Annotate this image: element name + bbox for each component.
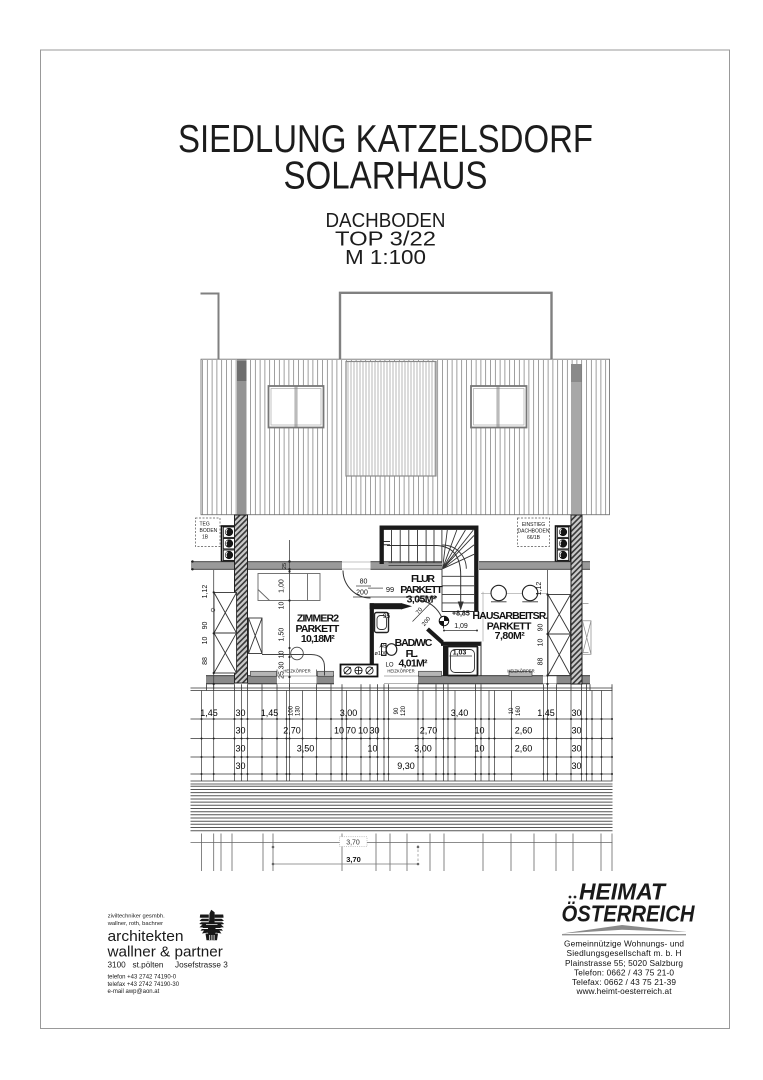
svg-text:3100 st.pölten: 3100 st.pölten	[108, 961, 164, 970]
svg-text:100: 100	[289, 705, 295, 716]
svg-text:160: 160	[516, 705, 522, 716]
svg-text:HEIZKÖRPER: HEIZKÖRPER	[387, 669, 414, 674]
svg-text:10: 10	[279, 602, 286, 610]
svg-text:AB: AB	[380, 644, 388, 650]
svg-text:70: 70	[346, 726, 356, 736]
svg-text:10: 10	[202, 637, 209, 645]
svg-text:architekten: architekten	[108, 928, 184, 945]
svg-text:2,70: 2,70	[420, 726, 438, 736]
svg-text:1,45: 1,45	[537, 708, 555, 718]
svg-text:88: 88	[538, 658, 545, 666]
svg-text:30: 30	[571, 761, 581, 771]
svg-text:9,30: 9,30	[397, 761, 415, 771]
svg-text:1,45: 1,45	[261, 708, 279, 718]
svg-text:ÖSTERREICH: ÖSTERREICH	[562, 901, 695, 927]
svg-text:DACHBODEN: DACHBODEN	[518, 529, 550, 535]
svg-text:30: 30	[235, 761, 245, 771]
svg-text:30: 30	[571, 708, 581, 718]
svg-text:2,70: 2,70	[283, 726, 301, 736]
svg-text:30: 30	[235, 708, 245, 718]
svg-text:telefax +43 2742 74190-30: telefax +43 2742 74190-30	[108, 982, 180, 988]
svg-text:88: 88	[202, 657, 209, 665]
svg-text:66/1B: 66/1B	[527, 535, 541, 541]
svg-text:1,03: 1,03	[453, 650, 467, 657]
svg-text:10,18M²: 10,18M²	[301, 633, 335, 645]
svg-text:90: 90	[538, 624, 545, 632]
svg-text:wallner, roth, bachner: wallner, roth, bachner	[107, 921, 163, 927]
svg-text:3,40: 3,40	[451, 708, 469, 718]
svg-text:3,50: 3,50	[297, 744, 315, 754]
svg-text:TEG: TEG	[200, 522, 210, 528]
svg-text:90: 90	[394, 707, 400, 714]
svg-text:M 1:100: M 1:100	[345, 246, 426, 269]
svg-text:1,12: 1,12	[536, 582, 543, 596]
svg-text:10: 10	[538, 639, 545, 647]
svg-text:7,80M²: 7,80M²	[495, 630, 526, 642]
svg-text:EINSTIEG: EINSTIEG	[522, 522, 545, 528]
svg-text:30: 30	[235, 726, 245, 736]
svg-text:30: 30	[369, 726, 379, 736]
svg-text:4,01M²: 4,01M²	[398, 657, 428, 669]
svg-text:SOLARHAUS: SOLARHAUS	[284, 155, 488, 198]
svg-text:3,00: 3,00	[340, 708, 358, 718]
svg-text:telefon +43 2742 74190-0: telefon +43 2742 74190-0	[108, 974, 177, 980]
svg-text:10: 10	[474, 726, 484, 736]
svg-text:130: 130	[296, 705, 302, 716]
svg-text:1,12: 1,12	[202, 585, 209, 599]
svg-text:30: 30	[571, 726, 581, 736]
svg-text:HEIZKÖRPER: HEIZKÖRPER	[283, 669, 310, 674]
svg-text:3,05M²: 3,05M²	[407, 594, 437, 606]
svg-text:10: 10	[334, 726, 344, 736]
svg-text:99: 99	[386, 585, 394, 594]
svg-text:10: 10	[358, 726, 368, 736]
svg-text:95: 95	[383, 613, 391, 620]
svg-text:3,00: 3,00	[414, 744, 432, 754]
svg-text:e-mail awp@aon.at: e-mail awp@aon.at	[108, 989, 160, 995]
svg-text:90: 90	[202, 622, 209, 630]
svg-text:Telefon: 0662 / 43 75 21-0: Telefon: 0662 / 43 75 21-0	[574, 967, 674, 977]
svg-text:1,09: 1,09	[454, 623, 468, 630]
svg-text:www.heimt-oesterreich.at: www.heimt-oesterreich.at	[576, 986, 673, 996]
svg-text:30: 30	[235, 744, 245, 754]
svg-text:10: 10	[367, 744, 377, 754]
svg-text:200: 200	[356, 590, 368, 597]
svg-text:Siedlungsgesellschaft m. b. H: Siedlungsgesellschaft m. b. H	[567, 948, 682, 958]
svg-text:3,70: 3,70	[346, 840, 360, 847]
svg-text:BODEN: BODEN	[200, 528, 218, 534]
svg-text:1B: 1B	[202, 535, 209, 541]
svg-text:2,60: 2,60	[515, 726, 533, 736]
svg-text:ziviltechniker gesmbh.: ziviltechniker gesmbh.	[108, 913, 165, 919]
svg-text:25: 25	[279, 671, 286, 679]
svg-text:30: 30	[279, 662, 286, 670]
svg-text:wallner & partner: wallner & partner	[106, 944, 222, 961]
svg-text:2,60: 2,60	[515, 744, 533, 754]
svg-text:1,50: 1,50	[279, 628, 286, 642]
svg-text:ø100: ø100	[375, 651, 388, 657]
svg-text:10: 10	[279, 651, 286, 659]
svg-text:10: 10	[509, 707, 515, 714]
svg-text:80: 80	[360, 579, 368, 586]
svg-text:HEIZKÖRPER: HEIZKÖRPER	[507, 669, 534, 674]
svg-text:120: 120	[401, 705, 407, 716]
svg-text:+8,85: +8,85	[452, 611, 470, 618]
svg-text:25: 25	[282, 563, 288, 569]
svg-text:1,00: 1,00	[279, 579, 286, 593]
svg-text:Gemeinnützige Wohnungs- und: Gemeinnützige Wohnungs- und	[564, 939, 684, 949]
svg-text:3,70: 3,70	[346, 855, 361, 864]
svg-text:30: 30	[571, 744, 581, 754]
svg-text:10: 10	[474, 744, 484, 754]
svg-text:Josefstrasse 3: Josefstrasse 3	[175, 961, 228, 970]
svg-text:1,45: 1,45	[200, 708, 218, 718]
